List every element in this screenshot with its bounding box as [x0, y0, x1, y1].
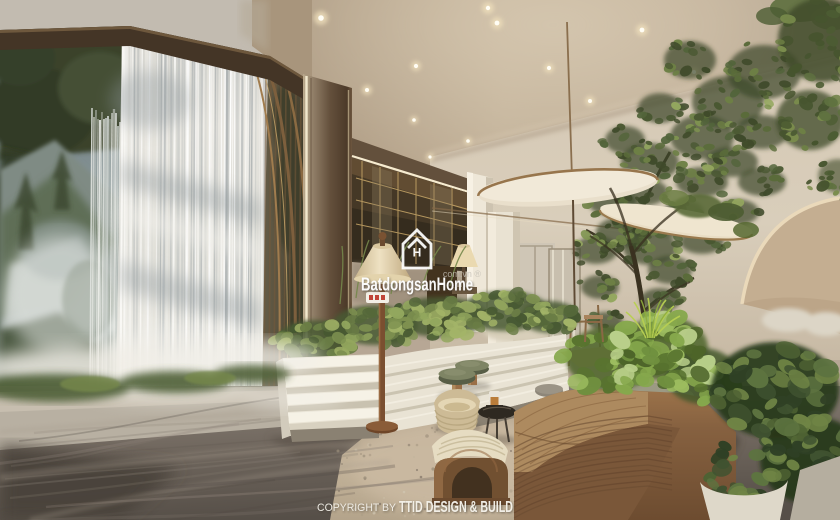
svg-text:H: H — [413, 246, 422, 260]
svg-text:COPYRIGHT BY: COPYRIGHT BY — [317, 502, 397, 514]
svg-text:TTID DESIGN & BUILD: TTID DESIGN & BUILD — [399, 499, 513, 516]
svg-text:BatdongsanHome: BatdongsanHome — [361, 274, 473, 295]
